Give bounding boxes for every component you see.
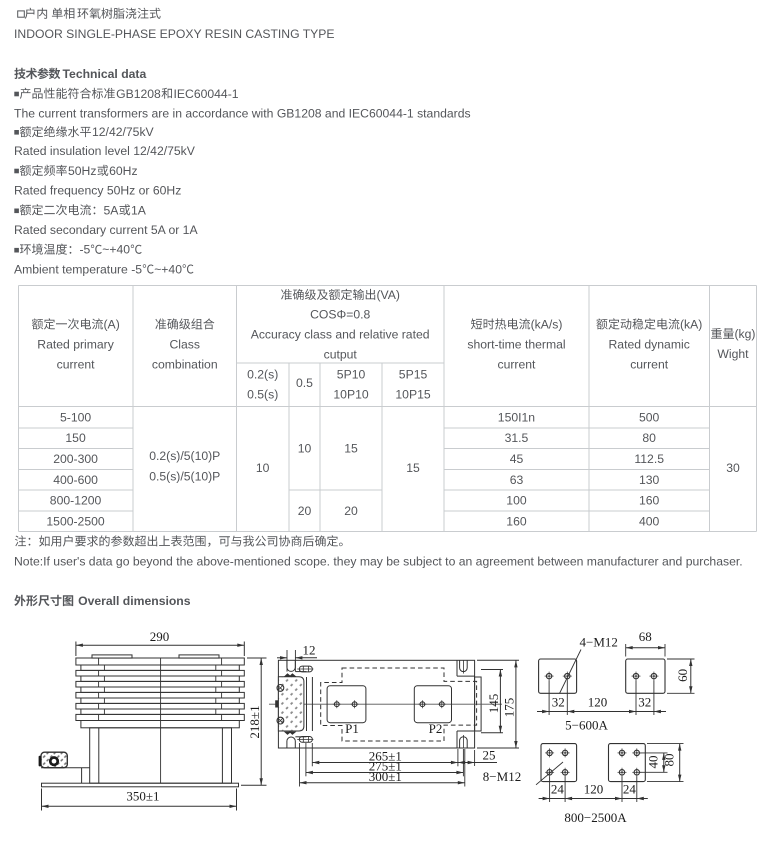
svg-text:10P15: 10P15 xyxy=(395,388,430,402)
svg-text:5P10: 5P10 xyxy=(337,367,366,381)
svg-text:Rated frequency 50Hz or 60Hz: Rated frequency 50Hz or 60Hz xyxy=(14,184,181,198)
svg-text:P2: P2 xyxy=(429,721,443,736)
svg-text:130: 130 xyxy=(639,473,660,487)
svg-text:290: 290 xyxy=(150,629,170,644)
svg-text:current: current xyxy=(498,358,537,372)
svg-text:12/42/75kV: 12/42/75kV xyxy=(92,125,155,139)
svg-text:68: 68 xyxy=(639,629,652,644)
svg-text:30: 30 xyxy=(726,461,740,475)
svg-text:~+40: ~+40 xyxy=(154,262,182,276)
svg-text:400-600: 400-600 xyxy=(53,473,98,487)
svg-text:25: 25 xyxy=(483,747,496,762)
svg-text:Rated secondary current 5A or: Rated secondary current 5A or 1A xyxy=(14,223,198,237)
svg-text:112.5: 112.5 xyxy=(634,452,664,466)
svg-text:-5: -5 xyxy=(80,243,91,257)
svg-text:Rated primary: Rated primary xyxy=(37,338,114,352)
svg-text:218±1: 218±1 xyxy=(247,705,262,738)
svg-text:(VA): (VA) xyxy=(377,288,400,302)
svg-text:GB1208: GB1208 xyxy=(116,87,161,101)
svg-text:Ambient temperature -5: Ambient temperature -5 xyxy=(14,262,142,276)
svg-text:175: 175 xyxy=(501,698,516,718)
svg-text:150: 150 xyxy=(65,431,86,445)
svg-text:1A: 1A xyxy=(131,203,147,217)
svg-text:32: 32 xyxy=(552,695,565,710)
svg-text:150I1n: 150I1n xyxy=(498,410,535,424)
svg-text:Rated dynamic: Rated dynamic xyxy=(609,338,690,352)
svg-text:INDOOR SINGLE-PHASE EPOXY RESI: INDOOR SINGLE-PHASE EPOXY RESIN CASTING … xyxy=(14,27,335,41)
svg-text:Overall dimensions: Overall dimensions xyxy=(78,594,191,608)
svg-text:IEC60044-1: IEC60044-1 xyxy=(174,87,239,101)
svg-text:8−M12: 8−M12 xyxy=(483,769,521,784)
svg-text:current: current xyxy=(630,358,669,372)
svg-text:1500-2500: 1500-2500 xyxy=(46,515,105,529)
svg-text:20: 20 xyxy=(344,504,358,518)
svg-text:0.5: 0.5 xyxy=(296,376,313,390)
svg-text:P1: P1 xyxy=(345,721,359,736)
svg-text:10: 10 xyxy=(256,461,270,475)
svg-text:Class: Class xyxy=(170,338,200,352)
svg-text:(kA/s): (kA/s) xyxy=(531,318,563,332)
svg-text:200-300: 200-300 xyxy=(53,452,98,466)
svg-text:0.5(s): 0.5(s) xyxy=(247,388,278,402)
svg-text:4−M12: 4−M12 xyxy=(580,635,618,650)
svg-text:5−600A: 5−600A xyxy=(565,717,608,732)
svg-text:20: 20 xyxy=(298,504,312,518)
svg-text:80: 80 xyxy=(662,754,677,767)
svg-text:80: 80 xyxy=(642,431,656,445)
svg-text:short-time thermal: short-time thermal xyxy=(467,338,565,352)
svg-text:32: 32 xyxy=(638,695,651,710)
svg-text:Note:If user's data go beyond: Note:If user's data go beyond the above-… xyxy=(14,554,743,568)
svg-text:45: 45 xyxy=(510,452,524,466)
svg-text:(kA): (kA) xyxy=(680,318,702,332)
svg-text:160: 160 xyxy=(639,494,660,508)
svg-text:~+40: ~+40 xyxy=(102,243,130,257)
svg-text:5-100: 5-100 xyxy=(60,410,91,424)
svg-text:800-1200: 800-1200 xyxy=(50,494,102,508)
svg-text:combination: combination xyxy=(152,358,218,372)
svg-text:0.2(s): 0.2(s) xyxy=(247,367,278,381)
svg-text:cutput: cutput xyxy=(324,348,358,362)
svg-text:100: 100 xyxy=(506,494,527,508)
svg-text:350±1: 350±1 xyxy=(126,789,159,804)
svg-text:24: 24 xyxy=(623,782,637,797)
svg-text:400: 400 xyxy=(639,515,660,529)
svg-text:15: 15 xyxy=(344,442,358,456)
svg-text:40: 40 xyxy=(645,756,660,769)
svg-text:Technical data: Technical data xyxy=(63,67,147,81)
svg-text:63: 63 xyxy=(510,473,524,487)
svg-text:500: 500 xyxy=(639,410,660,424)
svg-text:50Hz: 50Hz xyxy=(68,164,96,178)
svg-text:31.5: 31.5 xyxy=(505,431,529,445)
svg-text:10P10: 10P10 xyxy=(333,388,368,402)
svg-text:(A): (A) xyxy=(104,318,120,332)
svg-text:12: 12 xyxy=(303,643,316,658)
svg-text:5A: 5A xyxy=(104,203,120,217)
svg-text:120: 120 xyxy=(584,782,604,797)
svg-text:0.2(s)/5(10)P: 0.2(s)/5(10)P xyxy=(149,449,220,463)
svg-text:60: 60 xyxy=(675,669,690,682)
svg-text:160: 160 xyxy=(506,515,527,529)
svg-text:5P15: 5P15 xyxy=(399,367,428,381)
svg-text:0.5(s)/5(10)P: 0.5(s)/5(10)P xyxy=(149,470,220,484)
svg-text:10: 10 xyxy=(298,442,312,456)
svg-text:145: 145 xyxy=(486,694,501,714)
svg-text:current: current xyxy=(57,358,96,372)
svg-text:Rated insulation level 12/42/7: Rated insulation level 12/42/75kV xyxy=(14,144,196,158)
svg-text:120: 120 xyxy=(588,695,608,710)
svg-text:Wight: Wight xyxy=(717,347,749,361)
svg-text:800−2500A: 800−2500A xyxy=(564,810,627,825)
svg-text:COSΦ=0.8: COSΦ=0.8 xyxy=(310,308,370,322)
svg-text:300±1: 300±1 xyxy=(369,769,402,784)
svg-text:Accuracy class and relative ra: Accuracy class and relative rated xyxy=(251,327,430,341)
svg-text:15: 15 xyxy=(406,461,420,475)
svg-text:60Hz: 60Hz xyxy=(109,164,137,178)
svg-text:(kg): (kg) xyxy=(735,327,756,341)
svg-text:24: 24 xyxy=(551,782,565,797)
svg-text:The current transformers are i: The current transformers are in accordan… xyxy=(14,107,471,121)
